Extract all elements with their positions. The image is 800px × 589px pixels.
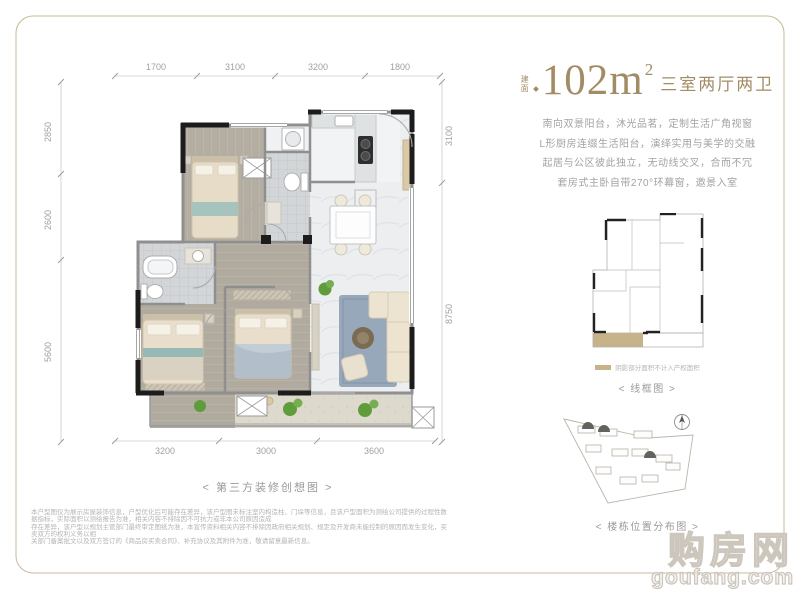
dim-bottom-3: 3600 [364, 446, 384, 456]
diamond-separator-icon [533, 86, 539, 92]
wireframe-svg [585, 213, 711, 353]
rooms-label: 三室两厅两卫 [660, 70, 774, 95]
plan-caption: < 第三方装修创想图 > [103, 479, 433, 495]
dim-left-2: 2600 [43, 210, 53, 230]
dim-right-2: 8750 [444, 304, 454, 324]
site-plan: < 楼栋位置分布图 > [505, 411, 790, 533]
tv-cabinet [312, 304, 319, 370]
north-compass-icon [675, 415, 690, 430]
dim-top-3: 3200 [308, 62, 328, 72]
armchair-icon [341, 353, 369, 381]
shaded-balcony-area [593, 333, 643, 347]
dim-top-2: 3100 [225, 62, 245, 72]
watermark: 购房网 goufang.com [651, 532, 794, 588]
floor-plan: 1700 3100 3200 1800 2850 2600 5600 3100 … [35, 52, 465, 462]
unit-description: 南向双景阳台，沐光品茗，定制生活广角视窗 L形厨房连缀生活阳台，演绎实用与美学的… [505, 115, 790, 193]
area-superscript: 2 [645, 60, 654, 80]
dim-bottom-2: 3000 [256, 446, 276, 456]
info-panel: 建面 102m 2 三室两厅两卫 南向双景阳台，沐光品茗，定制生活广角视窗 L形… [505, 60, 790, 533]
wireframe-legend: 阴影部分面积不计入产权面积 [505, 362, 790, 372]
master-bed-icon [143, 314, 214, 391]
sofa-icon [387, 292, 410, 382]
area-prefix: 建面 [521, 75, 532, 93]
wardrobe [233, 290, 291, 300]
site-plan-svg [550, 411, 745, 511]
bed-icon [184, 156, 248, 238]
wireframe-diagram: 阴影部分面积不计入产权面积 < 线框图 > [505, 213, 790, 395]
description-line: 南向双景阳台，沐光品茗，定制生活广角视窗 [505, 115, 790, 135]
bath-main-floor [265, 152, 310, 242]
toilet-icon [141, 284, 163, 299]
disclaimer: 本户型图仅为展示房屋装饰信息，户型优化后可能存在差异，该户型图未标注室内构造柱、… [31, 509, 449, 545]
washer-icon [282, 128, 304, 150]
dim-top-1: 1700 [146, 62, 166, 72]
dim-bottom-1: 3200 [155, 446, 175, 456]
watermark-site-name: 购房网 [651, 532, 794, 570]
unit-title: 建面 102m 2 三室两厅两卫 [505, 60, 790, 100]
description-line: L形厨房连缀生活阳台，演绎实用与美学的交融 [505, 135, 790, 155]
vanity-icon [267, 202, 281, 224]
toilet-icon [284, 173, 308, 191]
legend-swatch [595, 365, 611, 370]
watermark-domain: goufang.com [651, 568, 794, 588]
dim-left-3: 5600 [43, 342, 53, 362]
legend-text: 阴影部分面积不计入产权面积 [615, 362, 700, 372]
dim-left-1: 2850 [43, 122, 53, 142]
floorplan-sheet: 1700 3100 3200 1800 2850 2600 5600 3100 … [0, 0, 800, 589]
disclaimer-line: 关部门备案批文以及双方签订的《商品房买卖合同》、补充协议及其附件为准，敬请留意最… [31, 538, 449, 545]
disclaimer-line: 存在差异，该户型以规划主管部门最终审定图纸为准，本宣传资料相关内容不排除因政府相… [31, 524, 449, 539]
description-line: 套房式主卧自带270°环幕窗，邀景入室 [505, 174, 790, 194]
balcony-west-floor [150, 393, 235, 428]
dim-top-4: 1800 [390, 62, 410, 72]
dim-right-1: 3100 [444, 126, 454, 146]
disclaimer-line: 本户型图仅为展示房屋装饰信息，户型优化后可能存在差异，该户型图未标注室内构造柱、… [31, 509, 449, 524]
area-value: 102m [542, 62, 644, 100]
bathtub-icon [143, 256, 177, 278]
description-line: 起居与公区彼此独立，无动线交叉，合而不冗 [505, 154, 790, 174]
wireframe-caption: < 线框图 > [505, 380, 790, 395]
